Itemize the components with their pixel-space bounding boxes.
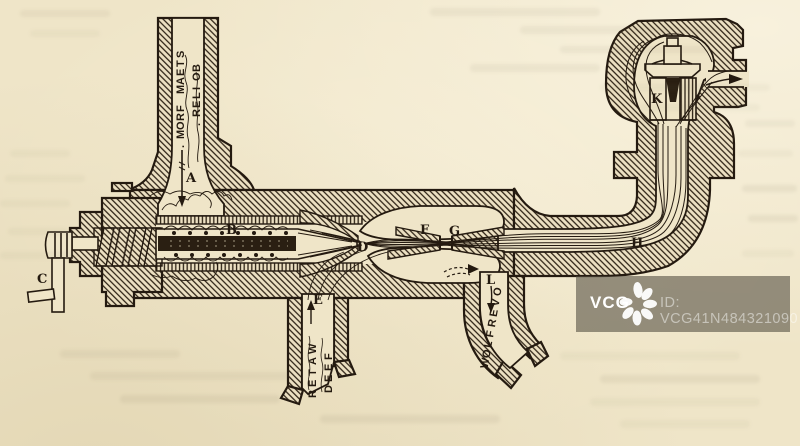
feed-label-line2: WATER	[307, 343, 319, 398]
callout-K: K	[651, 92, 663, 107]
body-top-boss	[112, 183, 132, 191]
feed-pipe-foot-left	[281, 386, 303, 404]
watermark-image-id: ID: VCG41N484321090	[660, 295, 798, 327]
callout-C: C	[37, 272, 47, 287]
handle-rod	[28, 289, 55, 302]
callout-L: L	[486, 273, 495, 288]
callout-B: B	[226, 223, 237, 238]
feed-pipe-foot-right	[334, 360, 355, 377]
feed-pipe-wall-left	[288, 298, 302, 392]
feed-pipe-wall-right	[334, 298, 348, 366]
book-page: A B C D E F G H K L STEAM FROM. BOILER. …	[0, 0, 800, 446]
callout-E: E	[313, 293, 323, 308]
valve-nut	[667, 38, 678, 46]
callout-A: A	[185, 171, 197, 186]
vcg-flower-icon	[616, 277, 662, 331]
callout-F: F	[420, 223, 430, 238]
callout-H: H	[631, 236, 643, 251]
callout-G: G	[449, 224, 460, 239]
valve-disc	[645, 64, 700, 77]
injector-engraving: A B C D E F G H K L STEAM FROM. BOILER. …	[0, 0, 800, 446]
valve-stem	[664, 46, 681, 64]
handle-bar	[52, 258, 64, 312]
steam-label-line2: BOILER.	[191, 64, 203, 126]
stock-photo-watermark: VCG ID: VCG41N484321090	[576, 276, 790, 332]
callout-D: D	[357, 240, 368, 255]
